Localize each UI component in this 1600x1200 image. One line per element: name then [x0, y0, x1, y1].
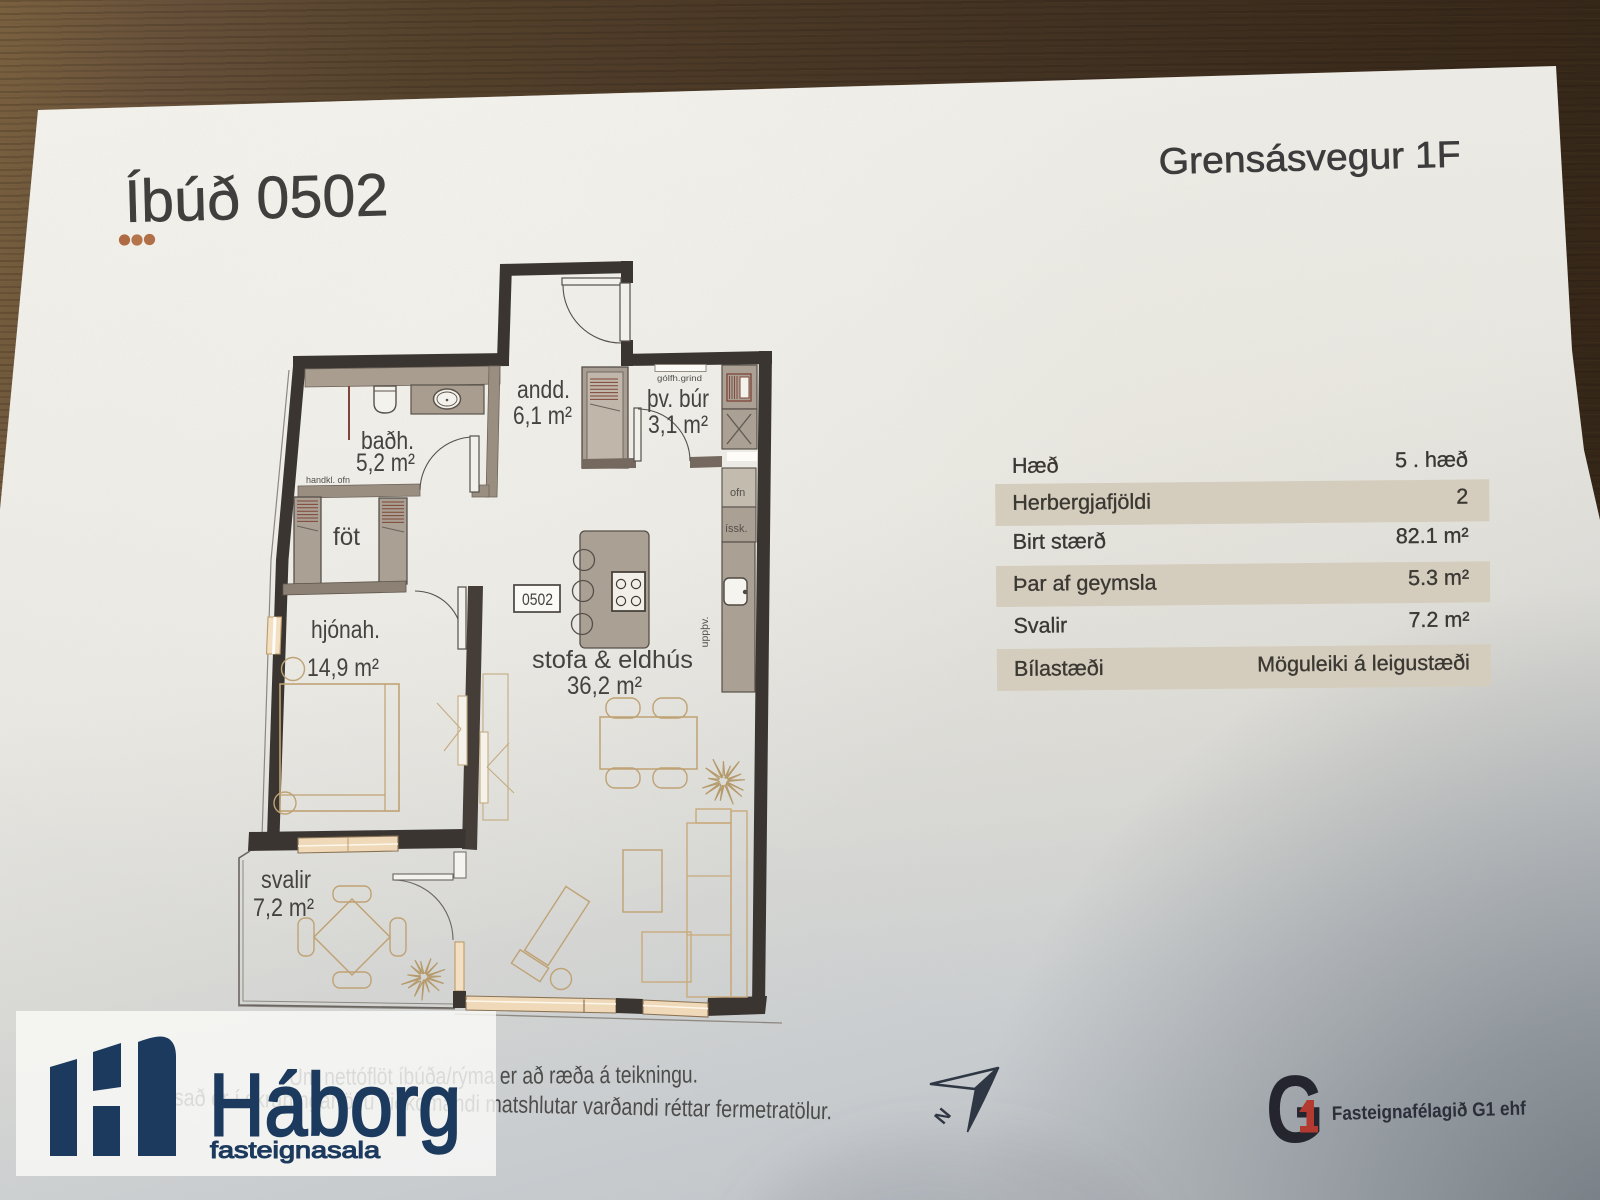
svg-text:3,1 m²: 3,1 m²	[648, 411, 708, 439]
svg-text:Íbúð 0502: Íbúð 0502	[124, 161, 390, 235]
svg-text:Herbergjafjöldi: Herbergjafjöldi	[1012, 490, 1151, 515]
svg-text:svalir: svalir	[261, 866, 311, 894]
svg-text:íssk.: íssk.	[725, 523, 748, 535]
svg-text:7.2 m²: 7.2 m²	[1408, 608, 1469, 633]
svg-text:6,1 m²: 6,1 m²	[513, 402, 572, 430]
svg-text:andd.: andd.	[517, 376, 570, 404]
svg-text:7,2 m²: 7,2 m²	[253, 894, 314, 922]
svg-text:Svalir: Svalir	[1013, 613, 1067, 638]
svg-text:fasteignasala: fasteignasala	[210, 1137, 380, 1163]
svg-text:þv. búr: þv. búr	[647, 385, 709, 413]
svg-text:Birt stærð: Birt stærð	[1013, 529, 1106, 554]
svg-text:Hæð: Hæð	[1012, 453, 1059, 477]
svg-text:G: G	[1266, 1056, 1324, 1163]
svg-text:uppþv.: uppþv.	[699, 617, 711, 648]
svg-text:5.3 m²: 5.3 m²	[1408, 566, 1469, 591]
svg-text:Möguleiki á leigustæði: Möguleiki á leigustæði	[1257, 650, 1470, 676]
svg-text:stofa & eldhús: stofa & eldhús	[532, 646, 693, 674]
svg-text:5 . hæð: 5 . hæð	[1395, 448, 1468, 473]
svg-text:ofn: ofn	[730, 487, 745, 499]
svg-text:Þar af geymsla: Þar af geymsla	[1013, 571, 1157, 596]
svg-text:hjónah.: hjónah.	[311, 616, 380, 644]
svg-text:Bílastæði: Bílastæði	[1014, 656, 1104, 681]
svg-text:0502: 0502	[522, 590, 553, 609]
svg-text:14,9 m²: 14,9 m²	[307, 654, 379, 682]
svg-text:Grensásvegur 1F: Grensásvegur 1F	[1158, 134, 1461, 182]
svg-text:handkl. ofn: handkl. ofn	[306, 475, 350, 485]
svg-text:5,2 m²: 5,2 m²	[356, 449, 415, 477]
svg-text:2: 2	[1456, 485, 1468, 509]
svg-text:föt: föt	[333, 523, 360, 551]
svg-text:82.1 m²: 82.1 m²	[1396, 524, 1469, 549]
svg-text:36,2 m²: 36,2 m²	[567, 672, 642, 700]
svg-text:gólfh.grind: gólfh.grind	[657, 373, 702, 383]
